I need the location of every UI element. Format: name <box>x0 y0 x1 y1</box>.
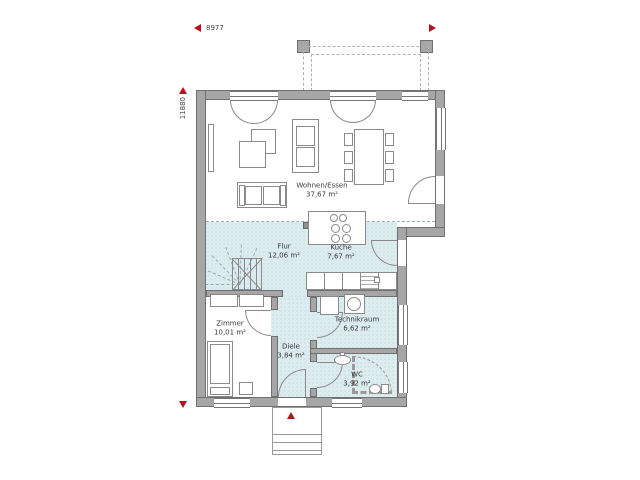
room-label-kueche: Küche 7,67 m² <box>327 244 354 261</box>
room-name: Flur <box>268 243 300 252</box>
terrace-outline-inner <box>311 54 421 91</box>
sofa-cushion <box>296 126 315 146</box>
dining-chair <box>385 133 394 146</box>
room-area: 7,67 m² <box>327 252 354 261</box>
toilet-bowl <box>369 384 381 394</box>
hob-burner <box>342 234 351 243</box>
dining-chair <box>385 169 394 182</box>
casement-arc <box>254 100 278 124</box>
room-label-diele: Diele 3,84 m² <box>277 343 304 360</box>
entrance-step-line <box>272 442 322 443</box>
room-label-flur: Flur 12,06 m² <box>268 243 300 260</box>
kitchen-side-door-leaf <box>371 240 397 241</box>
entrance-arrow-icon <box>287 412 295 419</box>
wall-zimmer-diele-a <box>271 297 278 310</box>
washbasin <box>334 355 351 365</box>
room-name: WC <box>343 371 370 380</box>
sideboard <box>208 124 214 172</box>
casement-arc <box>230 100 254 124</box>
window-north-right <box>402 91 428 101</box>
coffee-table <box>239 141 266 168</box>
entrance-steps <box>272 407 322 455</box>
sofa-cushion <box>296 147 315 167</box>
room-area: 6,62 m² <box>335 324 380 333</box>
wall-left <box>196 90 206 407</box>
stair-step <box>238 258 239 290</box>
room-label-technikraum: Technikraum 6,62 m² <box>335 316 380 333</box>
door-opening-terrace <box>436 176 444 204</box>
casement-arc <box>330 100 353 123</box>
sink-basin <box>339 214 347 222</box>
room-name: Diele <box>277 343 304 352</box>
nightstand <box>239 382 253 395</box>
kitchen-counter <box>306 272 397 290</box>
sink-basin <box>330 214 338 222</box>
window-zimmer-south <box>214 398 250 408</box>
dimension-arrow-left-icon <box>194 24 201 32</box>
counter-divider <box>324 272 325 290</box>
technik-unit <box>320 296 339 315</box>
door-opening-kitchen-side <box>398 240 406 266</box>
wall-technik-wc <box>310 348 397 354</box>
wardrobe <box>239 294 264 307</box>
entrance-door-leaf <box>305 369 306 397</box>
hob-burner <box>342 224 351 233</box>
bed-pillow <box>210 387 230 395</box>
room-label-wohnen-essen: Wohnen/Essen 37,67 m² <box>296 182 347 199</box>
zimmer-door-leaf <box>245 310 271 311</box>
sofa-cushion <box>245 186 262 205</box>
window-living-east <box>436 108 446 150</box>
room-label-zimmer: Zimmer 10,01 m² <box>214 320 246 337</box>
room-area: 3,84 m² <box>277 351 304 360</box>
dimension-arrow-up-icon <box>179 87 187 94</box>
room-area: 3,92 m² <box>343 379 370 388</box>
room-name: Küche <box>327 244 354 253</box>
room-name: Wohnen/Essen <box>296 182 347 191</box>
bed-mattress <box>210 344 230 384</box>
wall-diele-technik-a <box>310 297 317 312</box>
dining-chair <box>344 169 353 182</box>
room-area: 10,01 m² <box>214 328 246 337</box>
casement-arc <box>353 100 376 123</box>
window-technikraum-east <box>398 305 408 345</box>
door-opening-entrance <box>278 398 306 406</box>
hob-burner <box>331 234 340 243</box>
window-wc-east <box>398 362 408 393</box>
room-name: Technikraum <box>335 316 380 325</box>
dimension-arrow-right-icon <box>429 24 436 32</box>
zimmer-door-arc <box>245 310 271 336</box>
room-label-wc: WC 3,92 m² <box>343 371 370 388</box>
sofa-armrest <box>280 185 286 206</box>
room-area: 37,67 m² <box>296 190 347 199</box>
entrance-step-line <box>272 434 322 435</box>
terrace-door-leaf <box>408 203 435 204</box>
stair-step <box>250 258 251 290</box>
sofa-cushion <box>263 186 280 205</box>
room-area: 12,06 m² <box>268 251 300 260</box>
dining-table <box>354 129 384 185</box>
width-dimension-label: 8977 <box>206 24 224 32</box>
floor-plan-canvas: 8977 11880 Wohnen/Essen 37,67 m² Flur 12… <box>0 0 640 480</box>
counter-sink-unit <box>374 277 380 283</box>
dining-chair <box>385 151 394 164</box>
window-wc-south <box>332 398 362 408</box>
dimension-arrow-down-icon <box>179 401 187 408</box>
wall-diele-wc <box>310 388 317 397</box>
terrace-door-arc <box>408 176 435 203</box>
washbasin-faucet <box>340 352 345 356</box>
washing-machine-drum <box>347 297 361 311</box>
hob-burner <box>331 224 340 233</box>
dining-chair <box>344 151 353 164</box>
dining-chair <box>344 133 353 146</box>
wardrobe <box>210 294 238 307</box>
counter-divider <box>342 272 343 290</box>
entrance-step-line <box>272 450 322 451</box>
room-name: Zimmer <box>214 320 246 329</box>
height-dimension-label: 11880 <box>179 97 187 119</box>
toilet-tank <box>381 384 389 394</box>
